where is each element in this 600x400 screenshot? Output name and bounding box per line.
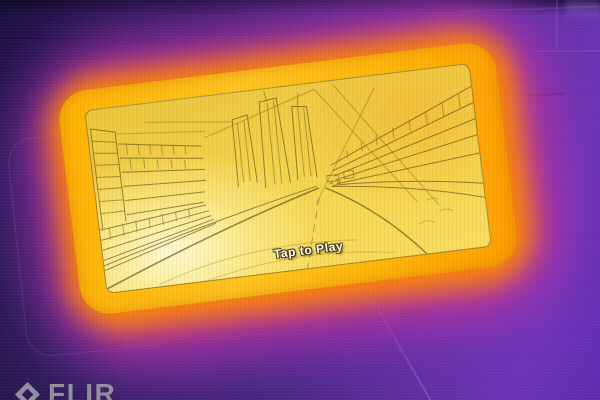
right-elevated-track: [324, 86, 483, 201]
left-building-rows: [116, 112, 242, 215]
warm-corner-patch: [566, 0, 600, 16]
road: [88, 166, 490, 293]
flir-wordmark: FLIR: [48, 380, 116, 400]
flir-watermark: FLIR: [14, 380, 116, 400]
left-tall-building: [90, 126, 126, 230]
brick-mortar-line: [556, 0, 558, 48]
center-skyscrapers: [227, 86, 317, 190]
thermal-photo: Tap to Play FLIR: [0, 0, 600, 400]
phone-screen[interactable]: Tap to Play: [84, 63, 492, 294]
smartphone: Tap to Play: [56, 40, 520, 317]
horizon-vehicles: [326, 171, 354, 185]
diagonal-cables: [201, 74, 439, 232]
flir-spark-icon: [14, 381, 41, 400]
